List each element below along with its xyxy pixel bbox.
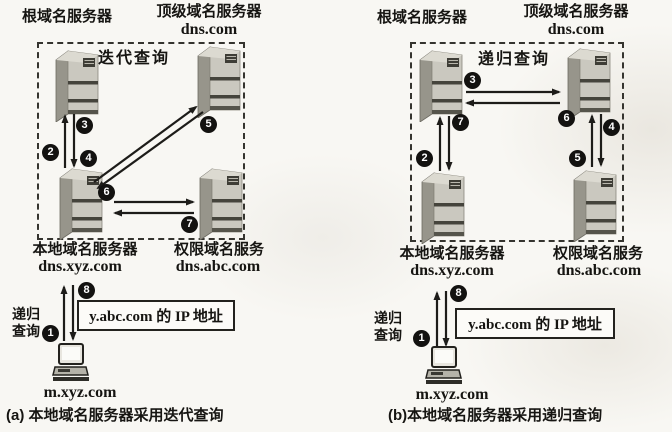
panel-a-local-server-label: 本地域名服务器 — [20, 241, 150, 259]
step-badge-8: 8 — [78, 282, 95, 299]
panel-a-root-server-label: 根域名服务器 — [8, 8, 126, 26]
panel-b-recursive-note-line2: 查询 — [374, 327, 402, 343]
panel-a-ip-result-box: y.abc.com 的 IP 地址 — [77, 300, 235, 331]
step-badge-6: 6 — [558, 110, 575, 127]
dns-query-diagram: 根域名服务器 顶级域名服务器 dns.com 迭代查询 本地域名服务器 dns.… — [0, 0, 672, 432]
panel-b-caption: (b)本地域名服务器采用递归查询 — [388, 404, 602, 425]
panel-a-recursive-note-line1: 递归 — [12, 306, 40, 322]
auth-server-icon — [570, 164, 618, 242]
step-badge-3: 3 — [76, 117, 93, 134]
step-badge-1: 1 — [413, 330, 430, 347]
panel-a-host-label: m.xyz.com — [30, 384, 130, 402]
step-badge-7: 7 — [181, 216, 198, 233]
tld-server-icon — [564, 42, 612, 120]
panel-b-local-server-domain: dns.xyz.com — [392, 262, 512, 280]
panel-b-local-server-label: 本地域名服务器 — [390, 245, 514, 263]
panel-b-tld-server-label: 顶级域名服务器 — [510, 3, 642, 21]
step-badge-2: 2 — [416, 150, 433, 167]
panel-a-local-server-domain: dns.xyz.com — [20, 258, 140, 276]
panel-a-recursive-note-line2: 查询 — [12, 323, 40, 339]
step-badge-1: 1 — [42, 325, 59, 342]
root-server-icon — [416, 44, 464, 122]
panel-a-auth-server-label: 权限域名服务 — [160, 241, 278, 259]
tld-server-icon — [194, 40, 242, 118]
panel-b-auth-server-label: 权限域名服务 — [544, 245, 652, 263]
panel-a-query-mode-label: 迭代查询 — [98, 44, 170, 68]
panel-b-ip-result-box: y.abc.com 的 IP 地址 — [455, 308, 615, 339]
panel-b-query-mode-label: 递归查询 — [478, 45, 550, 69]
step-badge-3: 3 — [464, 72, 481, 89]
root-server-icon — [52, 44, 100, 122]
panel-a-caption: (a) 本地域名服务器采用迭代查询 — [6, 404, 224, 425]
host-computer-icon — [50, 342, 92, 384]
step-badge-2: 2 — [42, 144, 59, 161]
step-badge-4: 4 — [80, 150, 97, 167]
step-badge-8: 8 — [450, 285, 467, 302]
panel-a-auth-server-domain: dns.abc.com — [160, 258, 276, 276]
auth-server-icon — [196, 162, 244, 240]
panel-a-recursive-note: 递归 查询 — [2, 306, 40, 340]
local-server-icon — [418, 166, 466, 244]
step-badge-4: 4 — [603, 119, 620, 136]
panel-b-auth-server-domain: dns.abc.com — [544, 262, 654, 280]
panel-a-tld-server-label: 顶级域名服务器 — [144, 3, 274, 21]
panel-b-root-server-label: 根域名服务器 — [366, 9, 478, 27]
panel-b-host-label: m.xyz.com — [402, 386, 502, 404]
step-badge-5: 5 — [200, 116, 217, 133]
panel-b-recursive-note: 递归 查询 — [364, 310, 402, 344]
panel-b-tld-server-domain: dns.com — [510, 21, 642, 39]
host-computer-icon — [423, 345, 465, 387]
step-badge-7: 7 — [452, 114, 469, 131]
step-badge-6: 6 — [98, 184, 115, 201]
local-server-icon — [56, 162, 104, 240]
panel-a-tld-server-domain: dns.com — [144, 21, 274, 39]
step-badge-5: 5 — [569, 150, 586, 167]
panel-b-recursive-note-line1: 递归 — [374, 310, 402, 326]
